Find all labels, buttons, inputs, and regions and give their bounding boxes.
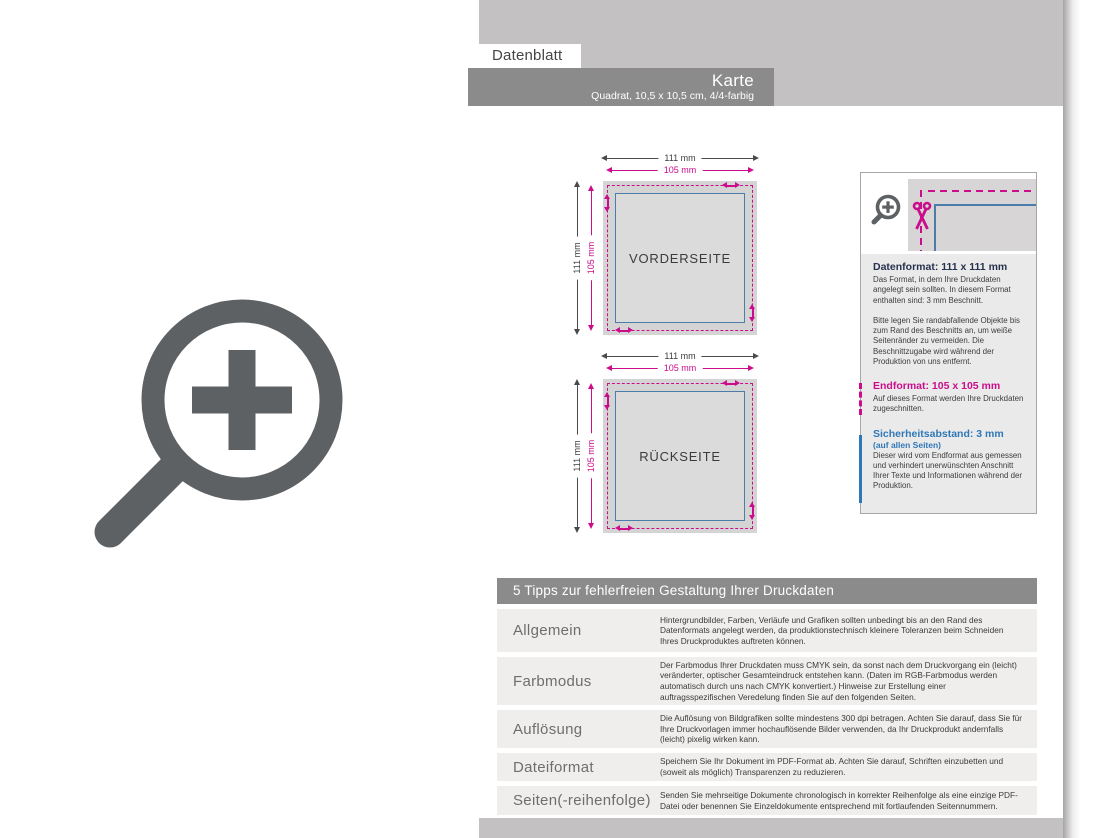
- tips-row-text: Der Farbmodus Ihrer Druckdaten muss CMYK…: [660, 657, 1037, 705]
- back-side-diagram: RÜCKSEITE: [615, 391, 745, 521]
- dimension-label-111mm: 111 mm: [658, 153, 701, 163]
- tips-row-dateiformat: Dateiformat Speichern Sie Ihr Dokument i…: [497, 753, 1037, 781]
- tips-row-farbmodus: Farbmodus Der Farbmodus Ihrer Druckdaten…: [497, 657, 1037, 705]
- tips-title: 5 Tipps zur fehlerfreien Gestaltung Ihre…: [497, 578, 1037, 604]
- format-info-box: Datenformat: 111 x 111 mm Das Format, in…: [860, 172, 1037, 514]
- tips-row-text: Hintergrundbilder, Farben, Verläufe und …: [660, 609, 1037, 652]
- bottom-gray-band: [479, 818, 1063, 838]
- dimension-label-105mm: 105 mm: [586, 434, 596, 479]
- sicherheitsabstand-heading: Sicherheitsabstand: 3 mm: [873, 428, 1028, 440]
- front-inner-height-dimension: 105 mm: [586, 185, 596, 331]
- front-outer-height-dimension: 111 mm: [572, 181, 582, 335]
- tips-row-label: Dateiformat: [497, 753, 660, 781]
- safety-line: [934, 204, 936, 251]
- scissors-icon: [911, 201, 933, 233]
- sicherheitsabstand-subheading: (auf allen Seiten): [873, 440, 1028, 450]
- page-title: Karte: [468, 71, 754, 90]
- back-side-label: RÜCKSEITE: [639, 449, 721, 464]
- datenformat-body-2: Bitte legen Sie randabfallende Objekte b…: [873, 316, 1028, 367]
- bleed-arrow-icon: [615, 525, 633, 532]
- tips-row-text: Die Auflösung von Bildgrafiken sollte mi…: [660, 710, 1037, 748]
- back-inner-height-dimension: 105 mm: [586, 383, 596, 529]
- safety-line: [934, 204, 1036, 206]
- tab-datenblatt[interactable]: Datenblatt: [479, 44, 581, 68]
- dimension-label-105mm: 105 mm: [658, 165, 703, 175]
- dimension-label-105mm: 105 mm: [658, 363, 703, 373]
- endformat-heading: Endformat: 105 x 105 mm: [873, 380, 1028, 392]
- tips-row-allgemein: Allgemein Hintergrundbilder, Farben, Ver…: [497, 609, 1037, 652]
- format-info-text: Datenformat: 111 x 111 mm Das Format, in…: [861, 254, 1036, 513]
- front-side-diagram: VORDERSEITE: [615, 193, 745, 323]
- bleed-arrow-icon: [615, 327, 633, 334]
- tips-row-text: Speichern Sie Ihr Dokument im PDF-Format…: [660, 753, 1037, 781]
- sicherheitsabstand-marker-line: [859, 435, 862, 503]
- bleed-arrow-icon: [749, 502, 756, 520]
- dimension-label-111mm: 111 mm: [658, 351, 701, 361]
- datenformat-heading: Datenformat: 111 x 111 mm: [873, 261, 1028, 273]
- front-side-label: VORDERSEITE: [629, 251, 731, 266]
- tips-row-label: Seiten(-reihenfolge): [497, 786, 660, 815]
- tips-row-label: Auflösung: [497, 710, 660, 748]
- tips-row-seitenreihenfolge: Seiten(-reihenfolge) Senden Sie mehrseit…: [497, 786, 1037, 815]
- top-gray-band-right: [774, 68, 1063, 106]
- back-inner-width-dimension: 105 mm: [606, 363, 754, 373]
- sicherheitsabstand-body: Dieser wird vom Endformat aus gemessen u…: [873, 451, 1028, 492]
- bleed-dash-line: [928, 190, 1036, 192]
- zoom-plus-icon: [868, 193, 904, 231]
- datasheet-page: Datenblatt Karte Quadrat, 10,5 x 10,5 cm…: [0, 0, 1117, 838]
- product-title-bar: Karte Quadrat, 10,5 x 10,5 cm, 4/4-farbi…: [468, 68, 774, 106]
- back-outer-height-dimension: 111 mm: [572, 379, 582, 533]
- product-subtitle: Quadrat, 10,5 x 10,5 cm, 4/4-farbig: [468, 90, 754, 103]
- front-outer-width-dimension: 111 mm: [601, 153, 759, 163]
- endformat-marker-line: [859, 383, 862, 415]
- dimension-label-105mm: 105 mm: [586, 236, 596, 281]
- tips-row-label: Allgemein: [497, 609, 660, 652]
- corner-detail-diagram: [908, 179, 1036, 251]
- bleed-arrow-icon: [722, 380, 740, 387]
- bleed-arrow-icon: [604, 194, 611, 212]
- endformat-body: Auf dieses Format werden Ihre Druckdaten…: [873, 394, 1028, 415]
- dimension-label-111mm: 111 mm: [572, 236, 582, 279]
- tips-row-label: Farbmodus: [497, 657, 660, 705]
- tips-row-text: Senden Sie mehrseitige Dokumente chronol…: [660, 786, 1037, 815]
- front-inner-width-dimension: 105 mm: [606, 165, 754, 175]
- page-edge-shadow: [1063, 0, 1081, 838]
- back-outer-width-dimension: 111 mm: [601, 351, 759, 361]
- tips-row-aufloesung: Auflösung Die Auflösung von Bildgrafiken…: [497, 710, 1037, 748]
- bleed-arrow-icon: [604, 392, 611, 410]
- zoom-plus-icon: [88, 288, 358, 568]
- bleed-arrow-icon: [722, 182, 740, 189]
- datenformat-body-1: Das Format, in dem Ihre Druckdaten angel…: [873, 275, 1028, 306]
- dimension-label-111mm: 111 mm: [572, 434, 582, 477]
- tips-table: Allgemein Hintergrundbilder, Farben, Ver…: [497, 609, 1037, 820]
- bleed-arrow-icon: [749, 304, 756, 322]
